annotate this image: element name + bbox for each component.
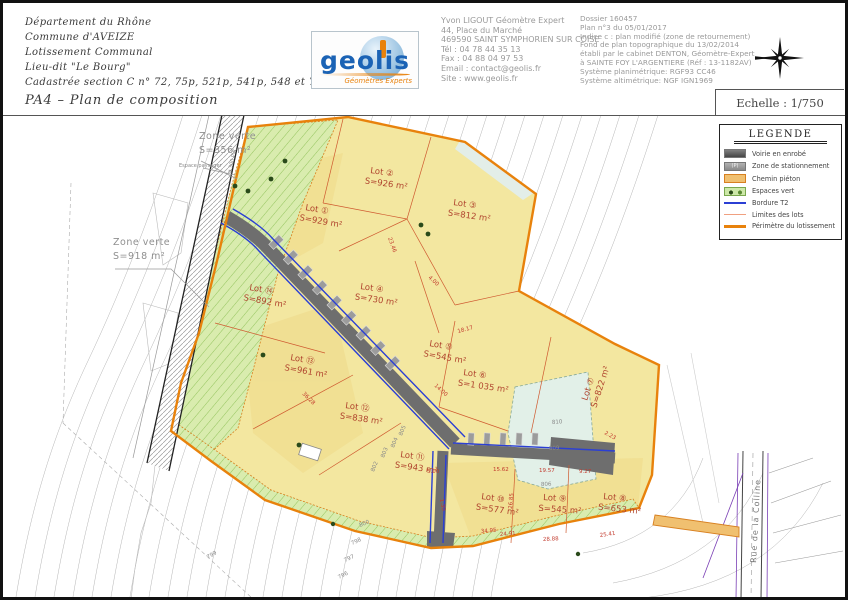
legend-label: Espaces vert xyxy=(752,187,794,195)
dossier-line: Système altimétrique: NGF IGN1969 xyxy=(580,77,754,86)
elevation-label: 799 xyxy=(206,550,219,561)
contact-line: 469590 SAINT SYMPHORIEN SUR COISE xyxy=(441,35,599,45)
elevation-label: 796 xyxy=(337,571,350,581)
zone-verte-label: Zone verte xyxy=(199,131,256,142)
legend-label: Voirie en enrobé xyxy=(752,150,806,158)
legend-label: Zone de stationnement xyxy=(752,162,829,170)
surveyor-contact: Yvon LIGOUT Géomètre Expert44, Place du … xyxy=(441,16,599,83)
contact-line: Fax : 04 88 04 97 53 xyxy=(441,54,599,64)
legend-row: Périmètre du lotissement xyxy=(724,222,837,230)
legend-row: Bordure T2 xyxy=(724,199,837,207)
dimension-label: 24.91 xyxy=(500,531,516,538)
title-line: Département du Rhône xyxy=(25,15,329,30)
legend-title: LEGENDE xyxy=(734,129,827,144)
title-line: Lieu-dit "Le Bourg" xyxy=(25,60,329,75)
contact-line: 44, Place du Marché xyxy=(441,26,599,36)
logo-word: geolis xyxy=(320,46,410,75)
legend-box: LEGENDE Voirie en enrobé(P)Zone de stati… xyxy=(719,124,842,240)
parking-bay xyxy=(500,433,507,445)
elevation-label: 806 xyxy=(541,482,552,488)
elevation-label: 810 xyxy=(552,419,563,426)
elevation-label: 797 xyxy=(343,554,356,564)
contour-line xyxy=(15,115,183,600)
road-swatch-icon xyxy=(724,149,746,158)
title-line: Lotissement Communal xyxy=(25,45,329,60)
parking-swatch-icon: (P) xyxy=(724,162,746,171)
elevation-label: 809 xyxy=(549,445,560,452)
parking-bay xyxy=(516,433,523,445)
zone-verte-area: S=356 m² xyxy=(199,145,251,156)
legend-label: Périmètre du lotissement xyxy=(752,222,835,230)
plan-sheet: Lot ①S=929 m²Lot ②S=926 m²Lot ③S=812 m²L… xyxy=(0,0,848,600)
title-line: PA4 – Plan de composition xyxy=(25,93,329,108)
legend-row: (P)Zone de stationnement xyxy=(724,162,837,171)
dimension-label: 9.27 xyxy=(579,469,592,475)
legend-row: Chemin piéton xyxy=(724,174,837,183)
legend-row: Espaces vert xyxy=(724,187,837,196)
legend-row: Limites des lots xyxy=(724,211,837,219)
street-name-label: Rue de la Colline xyxy=(749,479,762,563)
contact-line: Tél : 04 78 44 35 13 xyxy=(441,45,599,55)
contact-line: Site : www.geolis.fr xyxy=(441,74,599,84)
header-rule xyxy=(3,115,848,116)
geolis-logo: geolis Géomètres Experts xyxy=(311,31,419,89)
title-block: Département du RhôneCommune d'AVEIZELoti… xyxy=(25,15,329,108)
north-arrow-icon xyxy=(755,33,805,83)
contact-line: Email : contact@geolis.fr xyxy=(441,64,599,74)
title-line: Cadastrée section C n° 72, 75p, 521p, 54… xyxy=(25,75,329,90)
legend-label: Chemin piéton xyxy=(752,175,800,183)
dimension-label: 19.57 xyxy=(539,468,555,474)
zone-verte-label: Zone verte xyxy=(113,237,170,248)
scale-label: Echelle : 1/750 xyxy=(715,89,844,116)
logo-swoosh xyxy=(318,73,410,76)
elevation-label: 798 xyxy=(350,537,362,547)
parking-bay xyxy=(532,433,539,445)
dossier-info: Dossier 160457Plan n°3 du 05/01/2017Indi… xyxy=(580,15,754,85)
logo-tagline: Géomètres Experts xyxy=(344,77,412,85)
parking-bay xyxy=(484,433,491,445)
lot-number-label: Lot ⑨ xyxy=(543,493,567,505)
path-swatch-icon xyxy=(724,174,746,183)
contact-line: Yvon LIGOUT Géomètre Expert xyxy=(441,16,599,26)
limites-swatch-icon xyxy=(724,214,746,215)
bordure-swatch-icon xyxy=(724,202,746,205)
zone-verte-area: S=918 m² xyxy=(113,251,165,262)
dimension-label: 5.00 xyxy=(427,469,440,475)
dimension-label: 15.62 xyxy=(493,467,509,473)
dimension-label: 25.41 xyxy=(599,531,615,539)
legend-label: Bordure T2 xyxy=(752,199,788,207)
title-line: Commune d'AVEIZE xyxy=(25,30,329,45)
legend-row: Voirie en enrobé xyxy=(724,149,837,158)
legend-label: Limites des lots xyxy=(752,211,804,219)
dimension-label: 28.88 xyxy=(543,536,560,543)
green-swatch-icon xyxy=(724,187,746,196)
perimetre-swatch-icon xyxy=(724,225,746,228)
espace-paysager-label: Espace paysager xyxy=(179,163,223,169)
